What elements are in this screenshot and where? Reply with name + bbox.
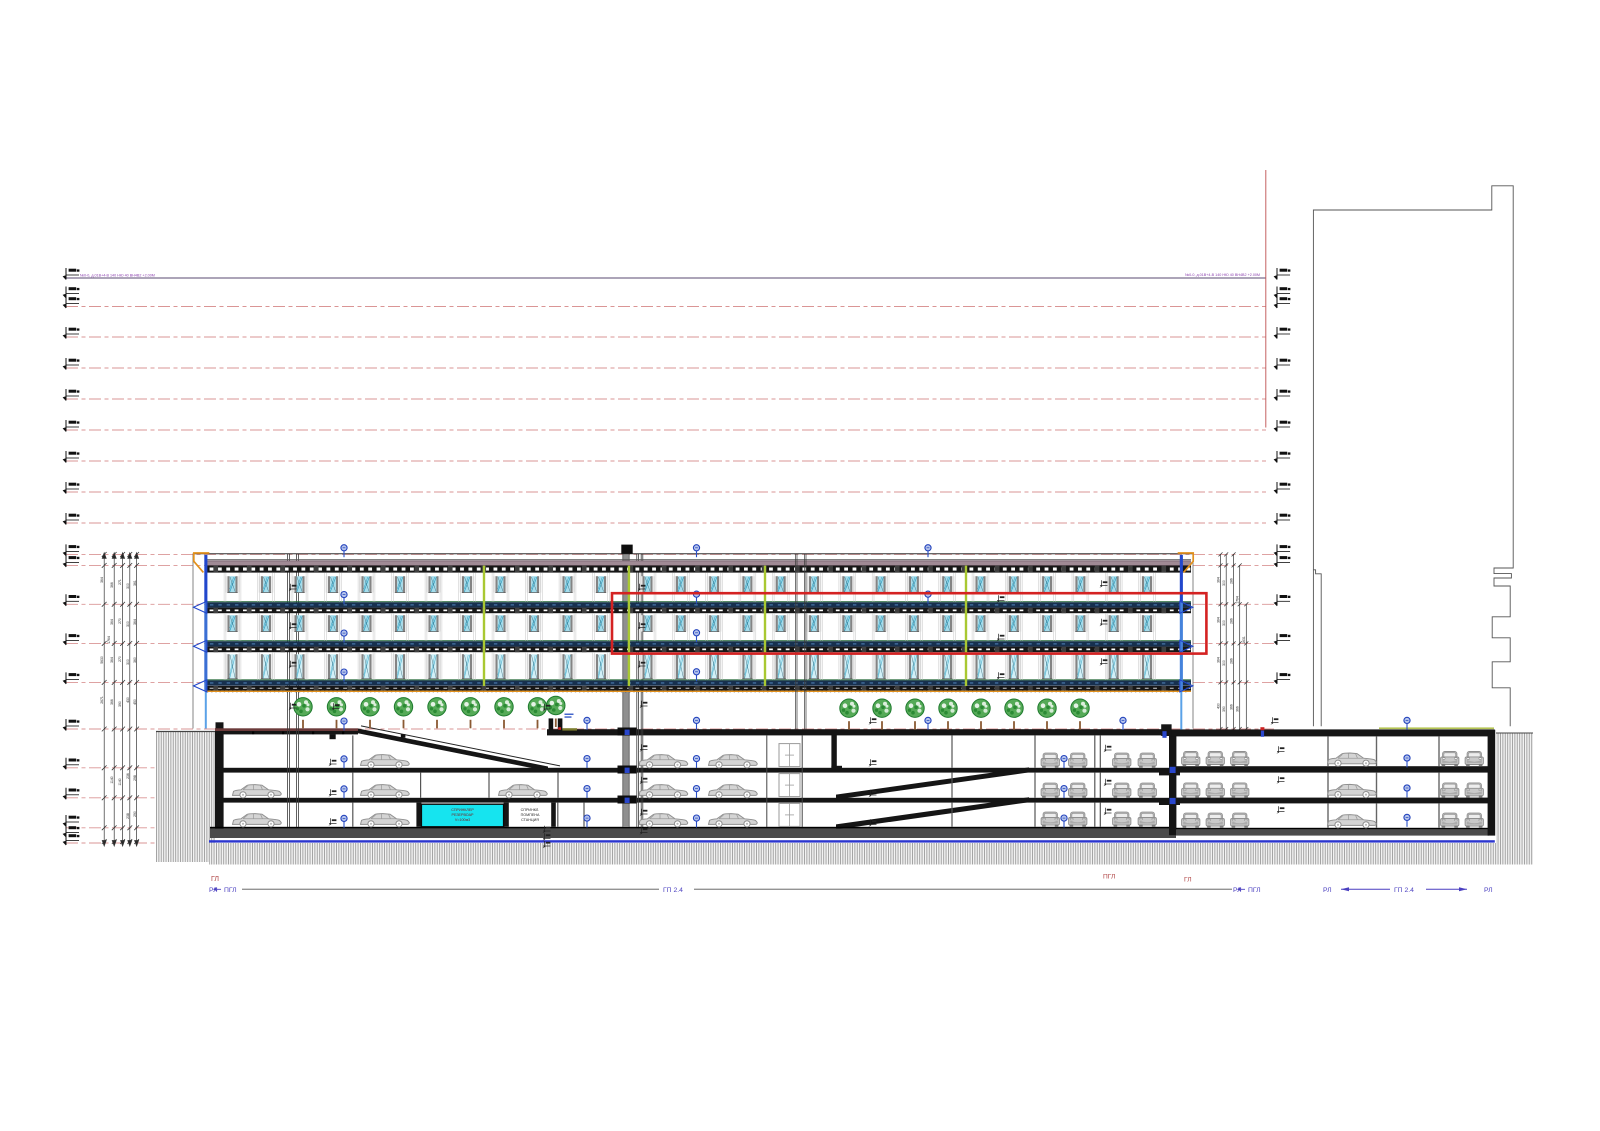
svg-text:366: 366 [1229, 704, 1233, 710]
svg-text:286: 286 [1229, 578, 1233, 584]
svg-text:РЛ: РЛ [1484, 887, 1493, 894]
svg-text:ПГЛ: ПГЛ [1248, 887, 1261, 894]
svg-text:1764: 1764 [107, 636, 111, 644]
svg-text:300: 300 [126, 621, 130, 627]
svg-text:300: 300 [126, 583, 130, 589]
svg-text:430: 430 [126, 697, 130, 703]
svg-text:ГЛ: ГЛ [1184, 877, 1192, 884]
svg-text:298: 298 [133, 775, 137, 781]
svg-text:360: 360 [133, 657, 137, 663]
svg-text:430: 430 [1216, 703, 1220, 709]
svg-text:366: 366 [110, 699, 114, 705]
svg-text:290: 290 [133, 811, 137, 817]
svg-text:300: 300 [1222, 580, 1226, 586]
svg-text:СПРИНКЛЕР: СПРИНКЛЕР [451, 808, 474, 812]
svg-text:№0-0, д.01В+4-В 140 НЮ 40 ВН4В: №0-0, д.01В+4-В 140 НЮ 40 ВН4В2 +2.00М [80, 273, 155, 277]
svg-text:271: 271 [118, 579, 122, 585]
svg-text:364: 364 [100, 577, 104, 583]
svg-text:СТАНЦИЯ: СТАНЦИЯ [521, 818, 539, 822]
svg-text:364: 364 [1216, 657, 1220, 663]
svg-text:1631: 1631 [1242, 636, 1246, 644]
svg-text:ПОМПЕНА: ПОМПЕНА [521, 813, 540, 817]
svg-text:300: 300 [1222, 660, 1226, 666]
svg-text:450: 450 [133, 699, 137, 705]
svg-text:V=100м3: V=100м3 [455, 818, 470, 822]
svg-text:2671: 2671 [100, 696, 104, 704]
svg-text:270: 270 [118, 618, 122, 624]
svg-text:366: 366 [110, 582, 114, 588]
svg-text:364: 364 [1216, 617, 1220, 623]
svg-text:ПГЛ: ПГЛ [1103, 874, 1115, 881]
svg-text:№0-0, д.01В+4-В 140 НЮ 40 ВН4В: №0-0, д.01В+4-В 140 НЮ 40 ВН4В2 +2.00М [1185, 273, 1260, 277]
svg-text:ГП 2.4: ГП 2.4 [1394, 887, 1414, 894]
svg-text:РЕЗЕРВОАР: РЕЗЕРВОАР [451, 813, 474, 817]
svg-text:1140: 1140 [118, 778, 122, 785]
svg-text:364: 364 [133, 619, 137, 625]
svg-text:1140: 1140 [110, 776, 114, 783]
svg-text:238: 238 [126, 813, 130, 819]
svg-text:ГП 2.4: ГП 2.4 [663, 887, 683, 894]
svg-text:300: 300 [1222, 620, 1226, 626]
svg-text:270: 270 [118, 656, 122, 662]
svg-text:ГЛ: ГЛ [211, 876, 219, 883]
svg-text:300: 300 [126, 659, 130, 665]
svg-text:390: 390 [1222, 706, 1226, 712]
svg-text:5630: 5630 [100, 656, 104, 664]
svg-text:390: 390 [118, 701, 122, 707]
svg-text:364: 364 [110, 619, 114, 625]
svg-text:286: 286 [1229, 618, 1233, 624]
svg-text:1764: 1764 [1236, 596, 1240, 604]
svg-text:РЛ: РЛ [1323, 887, 1332, 894]
svg-text:361: 361 [133, 580, 137, 586]
svg-text:ПГЛ: ПГЛ [224, 887, 237, 894]
svg-text:236: 236 [126, 773, 130, 779]
svg-text:СПРИНКЛ.: СПРИНКЛ. [521, 808, 540, 812]
svg-text:366: 366 [1236, 706, 1240, 712]
svg-text:364: 364 [1216, 577, 1220, 583]
svg-text:286: 286 [1229, 658, 1233, 664]
svg-text:364: 364 [110, 657, 114, 663]
